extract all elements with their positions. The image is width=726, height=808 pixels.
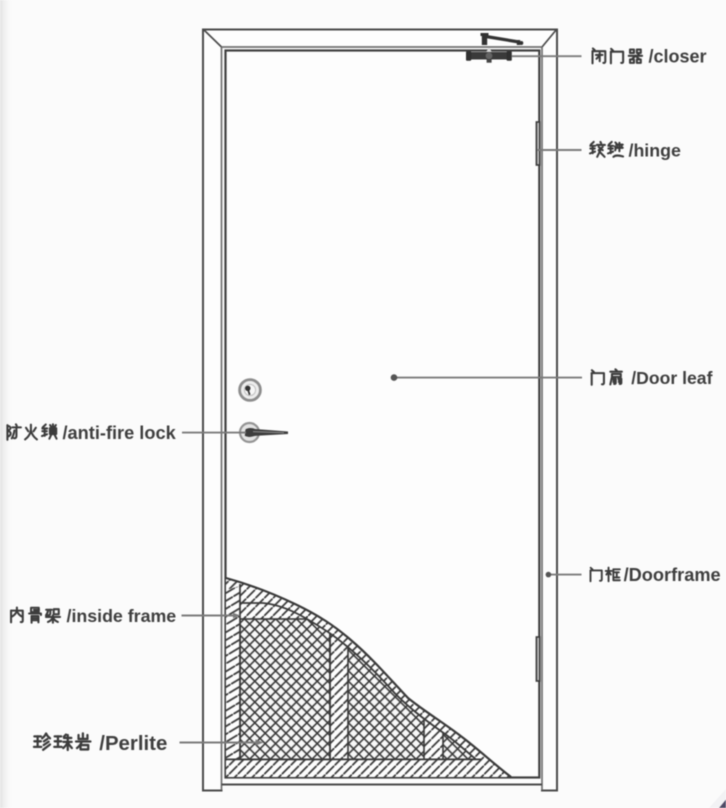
- svg-text:/anti-fire lock: /anti-fire lock: [63, 423, 177, 443]
- svg-text:/Perlite: /Perlite: [99, 733, 167, 755]
- svg-text:/inside frame: /inside frame: [67, 606, 177, 626]
- svg-text:/Doorframe: /Doorframe: [624, 565, 721, 585]
- svg-text:/hinge: /hinge: [629, 140, 681, 160]
- svg-text:/closer: /closer: [649, 47, 707, 67]
- svg-text:/Door leaf: /Door leaf: [631, 368, 712, 388]
